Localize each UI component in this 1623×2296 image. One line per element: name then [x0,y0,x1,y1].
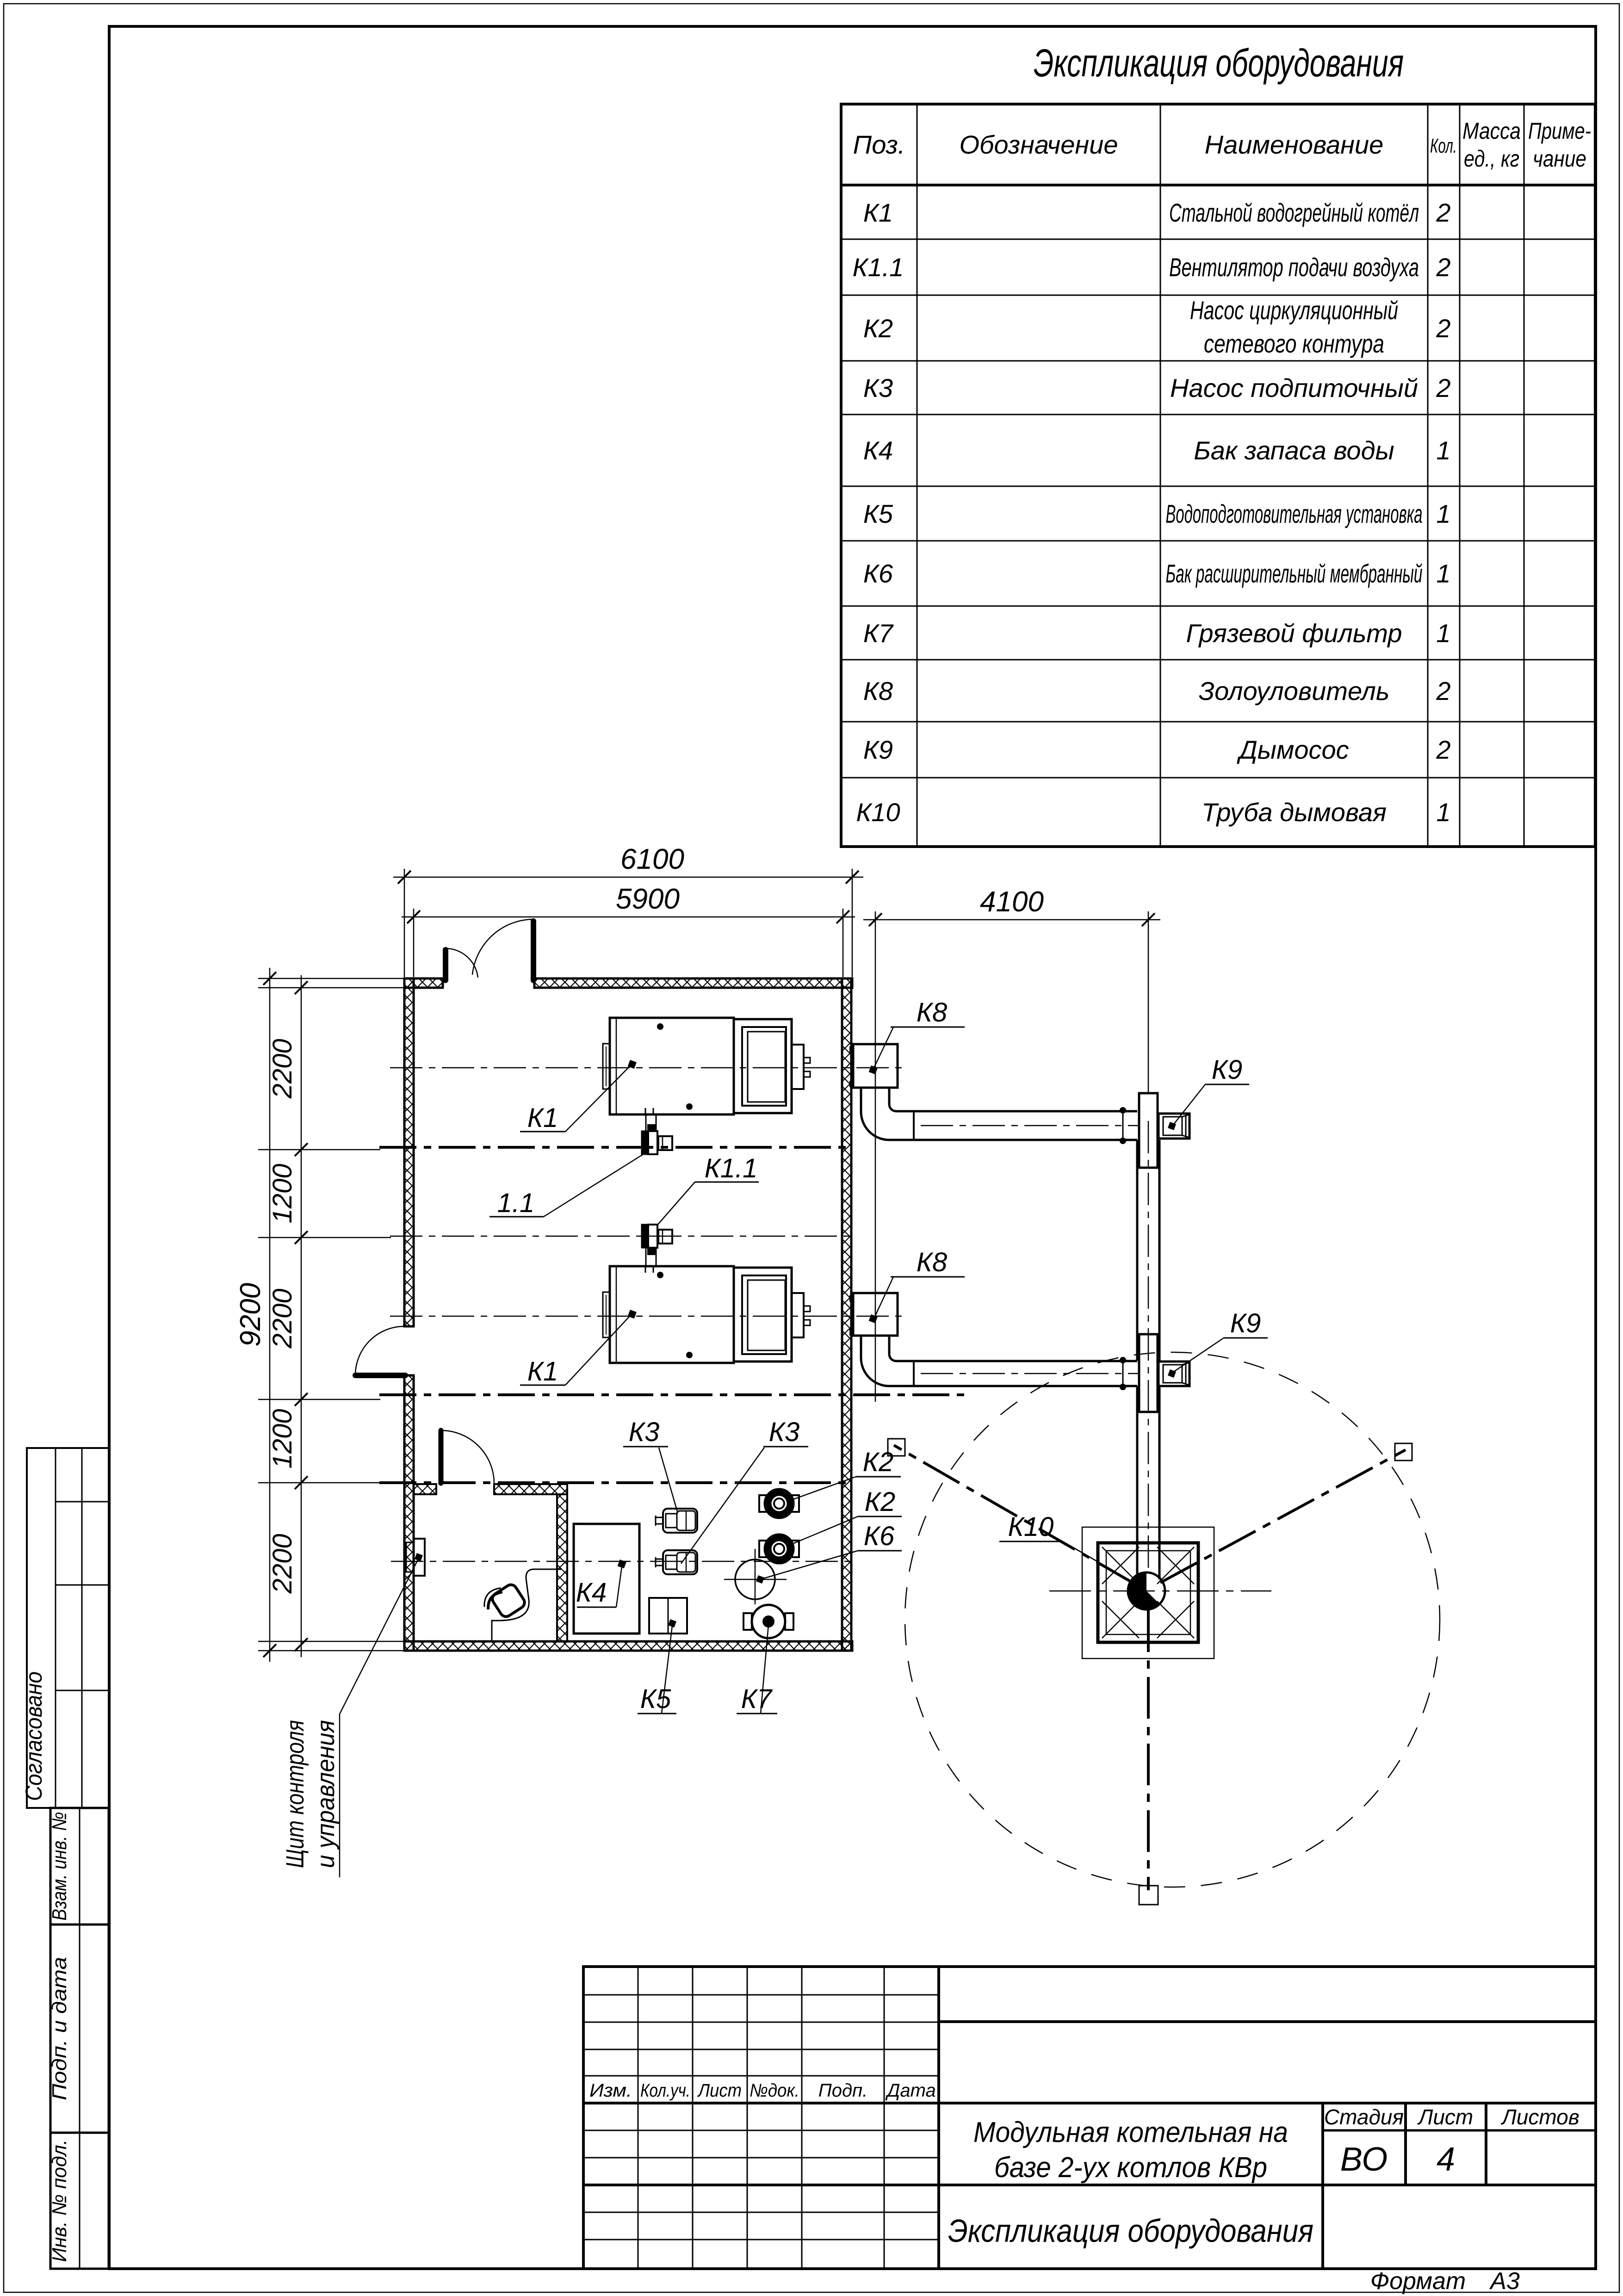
svg-text:К7: К7 [741,1684,773,1714]
svg-text:Изм.: Изм. [589,2080,632,2101]
svg-text:К9: К9 [1230,1308,1261,1338]
svg-text:Экспликация оборудования: Экспликация оборудования [1034,41,1404,85]
svg-text:Кол.: Кол. [1430,135,1457,157]
svg-text:Водоподготовительная установка: Водоподготовительная установка [1166,499,1423,528]
svg-text:К3: К3 [863,373,893,402]
svg-text:К6: К6 [864,1521,895,1551]
svg-text:Труба дымовая: Труба дымовая [1202,798,1387,827]
svg-text:2200: 2200 [267,1039,297,1099]
svg-text:Дымосос: Дымосос [1236,735,1349,764]
svg-text:Согласовано: Согласовано [21,1671,47,1801]
svg-text:Взам. инв. №: Взам. инв. № [48,1812,71,1921]
svg-text:Наименование: Наименование [1205,130,1383,159]
svg-text:К2: К2 [863,314,893,343]
svg-text:К1.1: К1.1 [853,253,904,282]
svg-text:К9: К9 [863,735,893,764]
svg-text:чание: чание [1533,146,1586,172]
svg-text:К2: К2 [865,1487,895,1517]
svg-text:Стадия: Стадия [1324,2105,1404,2129]
svg-text:9200: 9200 [235,1283,266,1347]
svg-text:К8: К8 [863,676,893,706]
svg-text:4100: 4100 [980,886,1044,918]
svg-text:К3: К3 [769,1417,799,1447]
svg-text:2: 2 [1436,676,1450,706]
svg-text:К8: К8 [917,1247,947,1277]
svg-text:2200: 2200 [267,1534,297,1594]
svg-text:5900: 5900 [616,883,680,915]
svg-text:К8: К8 [917,997,947,1027]
svg-text:1200: 1200 [267,1163,297,1223]
svg-text:Насос циркуляционный: Насос циркуляционный [1190,296,1398,325]
svg-text:К4: К4 [576,1578,607,1608]
svg-text:ВО: ВО [1340,2141,1388,2178]
svg-text:1: 1 [1436,436,1450,465]
svg-text:К1: К1 [863,198,893,227]
svg-text:Бак расширительный мембранный: Бак расширительный мембранный [1166,559,1423,588]
svg-text:Поз.: Поз. [853,130,905,159]
svg-text:Вентилятор подачи воздуха: Вентилятор подачи воздуха [1169,253,1419,282]
svg-text:Насос подпиточный: Насос подпиточный [1170,373,1418,402]
svg-text:Подп.: Подп. [818,2080,867,2101]
svg-text:Формат: Формат [1370,2268,1466,2295]
svg-text:К9: К9 [1212,1055,1242,1085]
svg-text:1: 1 [1436,559,1450,588]
svg-text:К1: К1 [527,1356,558,1386]
svg-text:Щит контроля: Щит контроля [281,1720,309,1868]
svg-text:2: 2 [1436,314,1450,343]
svg-text:Грязевой фильтр: Грязевой фильтр [1186,619,1402,648]
svg-text:Приме-: Приме- [1528,118,1591,144]
svg-text:1: 1 [1436,499,1450,528]
svg-text:6100: 6100 [620,843,684,875]
svg-text:Листов: Листов [1500,2105,1580,2129]
svg-text:Экспликация оборудования: Экспликация оборудования [948,2213,1313,2249]
svg-text:2: 2 [1436,735,1450,764]
svg-text:К5: К5 [863,499,893,528]
svg-text:К10: К10 [856,798,900,827]
svg-text:Подп. и дата: Подп. и дата [48,1957,71,2100]
svg-text:К10: К10 [1008,1512,1054,1542]
svg-text:и управления: и управления [312,1720,340,1868]
svg-text:Кол.уч.: Кол.уч. [640,2080,690,2101]
svg-text:Лист: Лист [1417,2105,1473,2129]
svg-text:Золоуловитель: Золоуловитель [1199,676,1390,706]
svg-text:К6: К6 [863,559,893,588]
svg-text:базе 2-ух котлов КВр: базе 2-ух котлов КВр [994,2152,1267,2184]
svg-text:К1.1: К1.1 [705,1153,758,1183]
svg-text:Обозначение: Обозначение [959,130,1118,159]
svg-text:Бак запаса воды: Бак запаса воды [1194,436,1394,465]
svg-text:1: 1 [1436,798,1450,827]
svg-text:1: 1 [1436,619,1450,648]
svg-text:1200: 1200 [267,1409,297,1468]
svg-text:Инв. № подл.: Инв. № подл. [48,2140,71,2262]
svg-text:2200: 2200 [267,1288,297,1349]
svg-text:2: 2 [1436,253,1450,282]
svg-text:1.1: 1.1 [497,1188,535,1218]
svg-text:А3: А3 [1489,2268,1520,2295]
svg-text:К1: К1 [527,1103,558,1133]
svg-text:Модульная котельная на: Модульная котельная на [973,2117,1288,2148]
svg-text:сетевого контура: сетевого контура [1204,329,1384,358]
svg-text:4: 4 [1437,2141,1455,2178]
svg-text:К4: К4 [863,436,893,465]
svg-text:К2: К2 [863,1447,893,1477]
svg-text:Дата: Дата [885,2080,936,2101]
svg-text:№док.: №док. [750,2080,799,2101]
svg-text:К7: К7 [863,619,894,648]
svg-text:К3: К3 [629,1417,659,1447]
svg-text:2: 2 [1436,373,1450,402]
svg-text:К5: К5 [640,1684,671,1714]
svg-text:Лист: Лист [697,2080,742,2101]
svg-text:Масса: Масса [1462,118,1521,144]
svg-text:2: 2 [1436,198,1450,227]
svg-text:ед., кг: ед., кг [1464,146,1519,172]
svg-text:Стальной водогрейный котёл: Стальной водогрейный котёл [1169,198,1419,227]
